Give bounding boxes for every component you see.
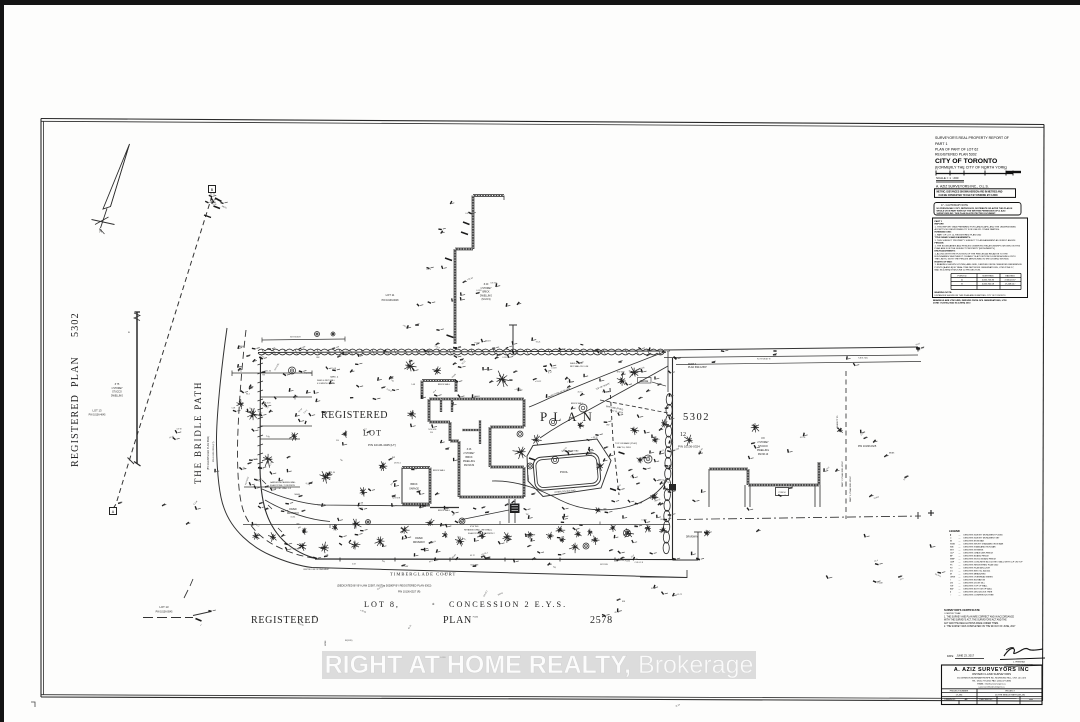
- svg-text:DS 94.1: DS 94.1: [491, 282, 498, 284]
- svg-text:5302: 5302: [683, 412, 710, 423]
- svg-text:LEGEND: LEGEND: [949, 529, 960, 533]
- svg-text:—: —: [959, 576, 961, 578]
- svg-text:LOT 11: LOT 11: [386, 293, 395, 297]
- svg-text:1. PART OF LOT 12, REGISTERED: 1. PART OF LOT 12, REGISTERED PLAN 5302: [935, 234, 983, 237]
- svg-text:5.08: 5.08: [332, 368, 336, 370]
- svg-text:DRIVEWAY: DRIVEWAY: [686, 536, 698, 539]
- svg-text:—: —: [959, 558, 961, 560]
- svg-text:POINTS [A AND B] BY REAL TIME: POINTS [A AND B] BY REAL TIME NETWORK OB…: [935, 266, 1015, 269]
- svg-text:—: —: [959, 579, 961, 581]
- svg-text:DATE:: DATE:: [947, 655, 954, 658]
- svg-text:—: —: [959, 582, 961, 584]
- svg-text:OHW: OHW: [588, 453, 593, 455]
- svg-text:DENOTES OVERHEAD WIRES: DENOTES OVERHEAD WIRES: [964, 575, 994, 578]
- svg-text:SURVEYOR'S REAL PROPERTY REPOR: SURVEYOR'S REAL PROPERTY REPORT OF: [935, 136, 1009, 140]
- svg-text:0.15 E: 0.15 E: [485, 340, 491, 342]
- svg-text:CENTRE LINE OF PAVEMENT: CENTRE LINE OF PAVEMENT: [303, 568, 330, 571]
- svg-text:TEL: (905) 737-5821 FAX: (4: TEL: (905) 737-5821 FAX: (416) 477-3882: [972, 680, 1012, 683]
- svg-text:P1&M: P1&M: [475, 396, 481, 398]
- svg-text:PROJECT NUMBER: PROJECT NUMBER: [950, 691, 969, 693]
- svg-text:✲: ✲: [313, 615, 316, 619]
- svg-text:45.72: 45.72: [470, 555, 475, 557]
- svg-text:SHED & RET WALL: SHED & RET WALL: [317, 379, 336, 382]
- svg-text:45.72: 45.72: [210, 193, 215, 195]
- svg-text:PIN 10136-4045 [LT]: PIN 10136-4045 [LT]: [368, 443, 396, 447]
- svg-text:0.9 S: 0.9 S: [386, 353, 391, 355]
- svg-text:—: —: [959, 570, 961, 572]
- svg-text:—: —: [959, 546, 961, 548]
- svg-text:BW: BW: [606, 425, 609, 427]
- svg-text:DRIVEWAY: DRIVEWAY: [413, 541, 425, 544]
- svg-text:N74°30′E: N74°30′E: [602, 392, 611, 394]
- svg-text:0.15 E: 0.15 E: [551, 367, 557, 369]
- svg-text:PAVED: PAVED: [415, 537, 423, 540]
- svg-text:INTENDED USE:: INTENDED USE:: [935, 232, 952, 234]
- svg-text:—: —: [959, 594, 961, 596]
- svg-text:DENOTES DECIDUOUS TREE: DENOTES DECIDUOUS TREE: [964, 591, 993, 593]
- svg-text:PAVED: PAVED: [289, 508, 297, 511]
- svg-text:550 DENISON BURNHAMTHORPE RD.: 550 DENISON BURNHAMTHORPE RD. RICHMOND H…: [957, 676, 1027, 679]
- svg-text:12: 12: [680, 432, 686, 438]
- svg-text:DENOTES MEASURED: DENOTES MEASURED: [964, 572, 987, 575]
- svg-text:# 46: # 46: [467, 449, 472, 451]
- svg-text:31.34: 31.34: [651, 588, 656, 590]
- svg-text:—: —: [959, 543, 961, 545]
- svg-text:—: —: [959, 534, 961, 536]
- svg-text:SURVEYOR'S CERTIFICATE: SURVEYOR'S CERTIFICATE: [944, 608, 980, 612]
- svg-text:PART 1: PART 1: [935, 220, 943, 223]
- svg-text:J. PRENTAS: J. PRENTAS: [1013, 660, 1025, 663]
- svg-text:STONE RET. WALL 0.3: STONE RET. WALL 0.3: [270, 487, 292, 490]
- svg-text:PIN 10136-0555 (LT): PIN 10136-0555 (LT): [213, 441, 215, 462]
- svg-text:T-BOLT(S): T-BOLT(S): [858, 358, 868, 360]
- svg-text:METRIC: DISTANCES SHOWN HEREO: METRIC: DISTANCES SHOWN HEREON ARE IN ME…: [937, 190, 1003, 193]
- svg-text:1. THIS SUBJECT PROPERTY SUBJE: 1. THIS SUBJECT PROPERTY SUBJECT TO AN E…: [935, 239, 1017, 242]
- svg-text:TOP OF BANK (P1&2): TOP OF BANK (P1&2): [615, 442, 637, 445]
- svg-text:—: —: [959, 591, 961, 593]
- svg-text:IB(1319): IB(1319): [664, 466, 672, 468]
- svg-text:NAD 83 [CSRS] MTM ZONE 10 PROJ: NAD 83 [CSRS] MTM ZONE 10 PROJECTION.: [935, 268, 982, 271]
- svg-text:ONTARIO LAND SURVEYORS: ONTARIO LAND SURVEYORS: [972, 672, 1011, 676]
- svg-text:93.4: 93.4: [246, 393, 250, 395]
- svg-text:—: —: [959, 588, 961, 590]
- svg-text:PIN 10136-0324: PIN 10136-0324: [678, 445, 700, 449]
- svg-text:17 - CAUTIONARY NOTE: 17 - CAUTIONARY NOTE: [941, 204, 968, 207]
- svg-text:POINT ID: POINT ID: [958, 276, 967, 278]
- svg-text:(FORMERLY THE CITY OF NORT: (FORMERLY THE CITY OF NORTH YORK): [935, 166, 1007, 170]
- svg-text:0.15 E: 0.15 E: [641, 520, 647, 522]
- svg-text:PLAN ARE FOR THE SUBJECT PROPE: PLAN ARE FOR THE SUBJECT PROPERTY [MONUM…: [935, 247, 996, 250]
- svg-text:IB(1319): IB(1319): [304, 373, 312, 375]
- svg-text:TW: TW: [525, 514, 528, 516]
- svg-text:31.34: 31.34: [290, 517, 295, 519]
- svg-text:PART 2, PLAN 66R-12597: PART 2, PLAN 66R-12597: [841, 460, 844, 487]
- svg-text:P1&M: P1&M: [473, 616, 479, 618]
- svg-text:2578: 2578: [590, 615, 613, 626]
- svg-text:CLF 0.1 N: CLF 0.1 N: [635, 562, 644, 564]
- svg-text:x 92.84: x 92.84: [252, 459, 258, 461]
- svg-text:DENOTES SHORT STANDARD IRON BA: DENOTES SHORT STANDARD IRON BAR: [964, 542, 1004, 545]
- svg-text:OHW: OHW: [950, 576, 955, 578]
- svg-text:GARD. &: GARD. &: [330, 376, 339, 379]
- svg-text:PLAN OF PART OF LOT 62: PLAN OF PART OF LOT 62: [935, 148, 978, 152]
- svg-text:DENOTES REGISTERED PLAN 5302: DENOTES REGISTERED PLAN 5302: [964, 563, 1000, 566]
- svg-text:1 STOREY: 1 STOREY: [480, 288, 492, 290]
- svg-text:M: M: [950, 573, 952, 575]
- svg-text:CBF: CBF: [950, 561, 955, 563]
- svg-text:0.15 E: 0.15 E: [800, 437, 806, 439]
- svg-text:DENOTES SURVEY MONUMENT FOUND: DENOTES SURVEY MONUMENT FOUND: [964, 534, 1004, 536]
- svg-text:N74°30′E: N74°30′E: [392, 497, 401, 499]
- svg-text:—: —: [959, 585, 961, 587]
- svg-text:SURVEYORS INC. THIS PLAN IS A: SURVEYORS INC. THIS PLAN IS A PROTECTED …: [937, 212, 997, 215]
- svg-text:TW: TW: [634, 526, 637, 528]
- svg-text:RETAINING WALL (RET.WALL): RETAINING WALL (RET.WALL): [464, 529, 493, 532]
- svg-text:—: —: [959, 573, 961, 575]
- svg-text:REGISTERED: REGISTERED: [321, 410, 388, 421]
- svg-text:N74°30′E: N74°30′E: [617, 372, 626, 374]
- svg-text:(N=24.9): (N=24.9): [481, 299, 490, 301]
- svg-text:5.08: 5.08: [213, 204, 217, 206]
- svg-text:THE BRIDLE PATH: THE BRIDLE PATH: [193, 381, 203, 484]
- svg-text:45.72: 45.72: [614, 612, 619, 614]
- svg-text:ENCROACHMENTS:: ENCROACHMENTS:: [935, 250, 956, 253]
- svg-text:DENOTES PLAN 66R-12597: DENOTES PLAN 66R-12597: [964, 566, 991, 569]
- svg-text:DENOTES INST. No. A50524: DENOTES INST. No. A50524: [964, 569, 992, 572]
- svg-text:TW: TW: [950, 585, 953, 587]
- svg-text:BW: BW: [950, 588, 953, 590]
- svg-text:DENOTES DOOR SILL: DENOTES DOOR SILL: [964, 582, 986, 584]
- svg-text:1. THE SURVEY AND PLAN ARE COR: 1. THE SURVEY AND PLAN ARE CORRECT AND I…: [944, 616, 1014, 619]
- svg-text:1. BEARING SHOWN SYSTEM, ARE G: 1. BEARING SHOWN SYSTEM, ARE GRID, DERIV…: [935, 263, 1023, 266]
- svg-text:P1&M: P1&M: [877, 583, 883, 585]
- svg-text:PLAN: PLAN: [540, 409, 598, 424]
- svg-text:N 73°58′40″ E: N 73°58′40″ E: [757, 359, 771, 361]
- svg-text:DISTANCES SHOWN ON THIS PLAN A: DISTANCES SHOWN ON THIS PLAN ARE IN METR…: [935, 294, 1006, 297]
- svg-text:TITLE SEARCH AND EASEMENTS:: TITLE SEARCH AND EASEMENTS:: [935, 236, 971, 239]
- svg-text:PLAN: PLAN: [70, 356, 81, 387]
- svg-text:SUBJECT TO: SUBJECT TO: [837, 415, 839, 428]
- svg-text:1. ALONG WITH THE POSITION OF: 1. ALONG WITH THE POSITION OF THE FENCES…: [935, 253, 1009, 256]
- svg-text:N74°30′E: N74°30′E: [318, 505, 327, 507]
- svg-text:PORCH: PORCH: [779, 492, 786, 494]
- svg-text:SCALE = 1 : 200: SCALE = 1 : 200: [936, 176, 959, 180]
- svg-text:FENCES:: FENCES:: [935, 243, 945, 245]
- svg-text:x 92.84: x 92.84: [515, 389, 521, 391]
- svg-text:5.08: 5.08: [411, 384, 415, 386]
- svg-text:BEARING NOTE:: BEARING NOTE:: [935, 291, 953, 294]
- svg-text:GARAGE: GARAGE: [409, 488, 419, 491]
- svg-text:MEAS: MEAS: [889, 451, 895, 454]
- svg-text:PLAN: PLAN: [443, 615, 472, 626]
- svg-text:BRICK WALL: BRICK WALL: [571, 402, 584, 405]
- svg-text:2. THE SURVEY WAS COMPLETED ON: 2. THE SURVEY WAS COMPLETED ON THE 9th D…: [944, 625, 1016, 628]
- svg-text:0.15 E: 0.15 E: [502, 357, 508, 359]
- svg-text:DENOTES WITNESS: DENOTES WITNESS: [964, 549, 984, 551]
- svg-text:DWELLING: DWELLING: [463, 461, 475, 463]
- svg-text:JUNE 23, 2017: JUNE 23, 2017: [957, 654, 975, 658]
- svg-text:PIN 10138-0325: PIN 10138-0325: [858, 445, 877, 448]
- svg-text:BOUNDARIES WHETHER IT CLEARLY: BOUNDARIES WHETHER IT CLEARLY IS A POSIT…: [935, 255, 1016, 258]
- svg-text:0.15 E: 0.15 E: [476, 290, 482, 292]
- svg-text:N74°30′E: N74°30′E: [470, 564, 479, 566]
- svg-text:x 93.12: x 93.12: [426, 350, 432, 352]
- svg-text:LOT 13: LOT 13: [160, 605, 169, 609]
- svg-text:17,448.02 /: 17,448.02 /: [1005, 284, 1016, 286]
- svg-text:DENOTES CHAIN LINK FENCE: DENOTES CHAIN LINK FENCE: [964, 551, 994, 554]
- svg-text:TW: TW: [262, 374, 265, 376]
- svg-text:GARDEN RETAINING WALL: GARDEN RETAINING WALL: [270, 481, 297, 484]
- svg-text:MEAS: MEAS: [295, 493, 301, 496]
- svg-text:N74°33′40″E: N74°33′40″E: [290, 337, 301, 339]
- svg-text:4,845,753.83: 4,845,753.83: [982, 280, 995, 282]
- svg-text:DENOTES CONIFEROUS TREE: DENOTES CONIFEROUS TREE: [964, 594, 995, 596]
- svg-text:I CERTIFY THAT:: I CERTIFY THAT:: [944, 612, 961, 615]
- svg-text:a.aziz.aziz@azizsurveyors.ca: a.aziz.aziz@azizsurveyors.ca: [978, 687, 1005, 689]
- svg-text:RET. WALL/CLF 0.3E: RET. WALL/CLF 0.3E: [570, 365, 589, 368]
- svg-text:PIN 10136-0527 (R): PIN 10136-0527 (R): [398, 591, 421, 594]
- svg-text:SSIB: SSIB: [950, 543, 955, 545]
- svg-text:0.9 S: 0.9 S: [427, 269, 432, 271]
- svg-text:MAY 10, 2018: MAY 10, 2018: [617, 446, 631, 449]
- svg-text:DRAWN BY:: DRAWN BY:: [944, 698, 956, 701]
- svg-text:BEARINGS ARE UTM GRID, DERIVED: BEARINGS ARE UTM GRID, DERIVED FROM GPS …: [933, 299, 1007, 302]
- svg-text:—: —: [959, 555, 961, 557]
- svg-text:5.08: 5.08: [359, 503, 363, 505]
- svg-text:DENOTES TOP OF WALL: DENOTES TOP OF WALL: [964, 584, 989, 587]
- svg-text:92.21: 92.21: [536, 342, 541, 344]
- svg-text:1 STOREY: 1 STOREY: [111, 388, 123, 390]
- svg-text:WBF: WBF: [950, 558, 955, 560]
- svg-text:45.72: 45.72: [677, 594, 682, 596]
- svg-text:DENOTES SURVEY MONUMENT SET: DENOTES SURVEY MONUMENT SET: [964, 537, 1001, 539]
- svg-text:A. AZIZ SURVEYORS INC., O.L.S: A. AZIZ SURVEYORS INC., O.L.S.: [936, 185, 989, 189]
- svg-text:5.08: 5.08: [232, 407, 236, 409]
- svg-text:CONCESSION 2 E.Y.S.: CONCESSION 2 E.Y.S.: [449, 600, 567, 609]
- svg-text:PART 1, PLAN 66R-12597: PART 1, PLAN 66R-12597: [849, 475, 852, 502]
- svg-text:REPORT:: REPORT:: [935, 224, 945, 226]
- svg-text:PIN 10139-0028: PIN 10139-0028: [382, 300, 399, 302]
- svg-text:—: —: [959, 567, 961, 569]
- svg-text:ACT AND THE REGULATIONS MADE U: ACT AND THE REGULATIONS MADE UNDER THEM.: [944, 622, 999, 625]
- svg-text:N74°30′E: N74°30′E: [428, 429, 437, 431]
- svg-text:0.9 S: 0.9 S: [658, 479, 663, 481]
- svg-text:RIGHTS OF WAY:: RIGHTS OF WAY:: [935, 260, 953, 263]
- svg-text:DENOTES BOARD FENCE: DENOTES BOARD FENCE: [964, 554, 990, 557]
- svg-text:# 40: # 40: [484, 284, 489, 286]
- svg-text:LOT 13: LOT 13: [93, 409, 102, 413]
- svg-text:PLAN 66R-12597: PLAN 66R-12597: [688, 366, 707, 369]
- svg-text:BRICK: BRICK: [482, 292, 489, 294]
- svg-text:DENOTES CONCRETE BLOCK RET. WA: DENOTES CONCRETE BLOCK RET. WALL WITH CL…: [964, 560, 1024, 563]
- svg-text:—: —: [959, 561, 961, 563]
- svg-text:31.34: 31.34: [358, 508, 363, 510]
- svg-text:BW: BW: [316, 357, 319, 359]
- svg-text:17-394: 17-394: [956, 695, 963, 697]
- svg-text:x 93.12: x 93.12: [591, 437, 597, 439]
- svg-text:ACCEPTS NO RESPONSIBILITY FOR: ACCEPTS NO RESPONSIBILITY FOR USE BY OTH…: [935, 228, 1001, 231]
- svg-text:DENOTES ELEVATION: DENOTES ELEVATION: [964, 578, 986, 581]
- svg-text:4 306,18.37: 4 306,18.37: [1005, 280, 1017, 282]
- svg-text:CITY OF TORONTO: CITY OF TORONTO: [935, 158, 997, 165]
- svg-text:N74°30′E: N74°30′E: [600, 564, 609, 566]
- svg-text:5302: 5302: [70, 312, 81, 337]
- svg-text:2 STOREY: 2 STOREY: [757, 442, 769, 444]
- svg-text:—: —: [959, 549, 961, 551]
- svg-text:EASTING: EASTING: [1005, 275, 1015, 278]
- svg-text:DS=96.10: DS=96.10: [758, 454, 769, 456]
- svg-text:POOL: POOL: [560, 470, 569, 474]
- svg-text:DENOTES STANDARD IRON BAR: DENOTES STANDARD IRON BAR: [964, 545, 997, 548]
- svg-text:46 THE BRIDLE PATH (DR-29): 46 THE BRIDLE PATH (DR-29): [995, 694, 1025, 697]
- svg-text:IB(1319): IB(1319): [345, 640, 353, 642]
- svg-text:PATIO: PATIO: [527, 475, 530, 481]
- svg-text:FLAGSTONE / CONCRETE: FLAGSTONE / CONCRETE: [270, 484, 296, 487]
- svg-text:PIN 10136-4045: PIN 10136-4045: [89, 415, 106, 417]
- svg-text:4′X4′ W.F.: 4′X4′ W.F.: [470, 526, 479, 528]
- svg-text:DWELLING: DWELLING: [757, 450, 769, 452]
- svg-text:DENOTES BOTTOM OF WALL: DENOTES BOTTOM OF WALL: [964, 587, 994, 590]
- svg-text:x 93.12: x 93.12: [535, 381, 541, 383]
- svg-text:—: —: [959, 552, 961, 554]
- svg-text:REGISTERED: REGISTERED: [251, 615, 319, 626]
- svg-text:—: —: [959, 540, 961, 542]
- svg-text:NORTHING: NORTHING: [982, 276, 993, 278]
- svg-text:# 75: # 75: [115, 384, 120, 386]
- svg-text:31.34: 31.34: [266, 371, 272, 373]
- svg-text:CAN BE CONVERTED TO FEET BY DI: CAN BE CONVERTED TO FEET BY DIVIDING BY …: [939, 194, 999, 197]
- svg-text:4,845,902.08: 4,845,902.08: [982, 284, 995, 286]
- svg-text:x 93.12: x 93.12: [293, 549, 299, 551]
- svg-text:PIN 10136-0545: PIN 10136-0545: [156, 612, 173, 614]
- svg-text:DWELLING: DWELLING: [111, 395, 123, 397]
- svg-text:0.3 W: 0.3 W: [177, 429, 182, 431]
- svg-text:CHECKED BY:: CHECKED BY:: [979, 699, 993, 701]
- svg-text:OHW: OHW: [660, 519, 665, 521]
- svg-text:2 STOREY: 2 STOREY: [463, 453, 475, 455]
- svg-text:x 93.12: x 93.12: [567, 381, 573, 383]
- svg-text:31.34: 31.34: [619, 560, 624, 562]
- svg-text:1. THE BOUNDARIES AND FENCES O: 1. THE BOUNDARIES AND FENCES OBSERVED RE…: [935, 244, 1021, 247]
- svg-text:P1&M: P1&M: [625, 561, 631, 563]
- svg-text:ZONE 17 [81W], NAD 83 [CSRS] 2: ZONE 17 [81W], NAD 83 [CSRS] 2010: [933, 302, 971, 305]
- svg-text:DWELLING: DWELLING: [480, 295, 492, 297]
- svg-text:BRICK WALL: BRICK WALL: [438, 383, 451, 386]
- svg-text:EMAIL: info@azizsurveyors.ca: EMAIL: info@azizsurveyors.ca: [977, 683, 1006, 686]
- svg-text:BRICK: BRICK: [465, 457, 472, 459]
- svg-text:STUCCO: STUCCO: [112, 392, 122, 394]
- svg-text:P1&M: P1&M: [474, 343, 480, 345]
- svg-text:DS=93.82: DS=93.82: [464, 465, 475, 467]
- svg-text:LOT 8,: LOT 8,: [364, 600, 400, 609]
- svg-text:MEAS: MEAS: [238, 345, 244, 348]
- svg-text:MEAS: MEAS: [323, 641, 326, 647]
- svg-text:5.08: 5.08: [352, 564, 356, 566]
- svg-text:PART 1: PART 1: [935, 142, 948, 146]
- svg-text:DENOTES IRON BAR: DENOTES IRON BAR: [964, 539, 985, 542]
- svg-text:REGISTERED: REGISTERED: [70, 394, 81, 467]
- svg-text:0.9 S: 0.9 S: [465, 213, 470, 215]
- svg-text:WITH THE SURVEYS ACT, THE SURV: WITH THE SURVEYS ACT, THE SURVEYORS ACT …: [944, 619, 1007, 622]
- svg-text:PROJECT: PROJECT: [1005, 691, 1015, 693]
- svg-text:BRICK WALL: BRICK WALL: [433, 469, 446, 472]
- svg-text:(BY REGISTERED PLAN 5302): (BY REGISTERED PLAN 5302): [207, 436, 210, 470]
- svg-text:REGISTERED PLAN 5302: REGISTERED PLAN 5302: [935, 153, 977, 157]
- svg-text:—: —: [959, 564, 961, 566]
- svg-text:DS 94.1: DS 94.1: [394, 463, 401, 465]
- svg-text:—: —: [959, 537, 961, 539]
- svg-text:1. THIS REPORT WAS PREPARED FO: 1. THIS REPORT WAS PREPARED FOR LANDSCAP…: [935, 226, 1017, 229]
- svg-text:OHW: OHW: [404, 566, 409, 568]
- svg-text:BRICK: BRICK: [410, 484, 417, 486]
- svg-text:BW: BW: [392, 457, 395, 459]
- svg-text:DENOTES WOOD BOARD FENCE: DENOTES WOOD BOARD FENCE: [964, 557, 997, 560]
- svg-text:45.72: 45.72: [578, 392, 583, 394]
